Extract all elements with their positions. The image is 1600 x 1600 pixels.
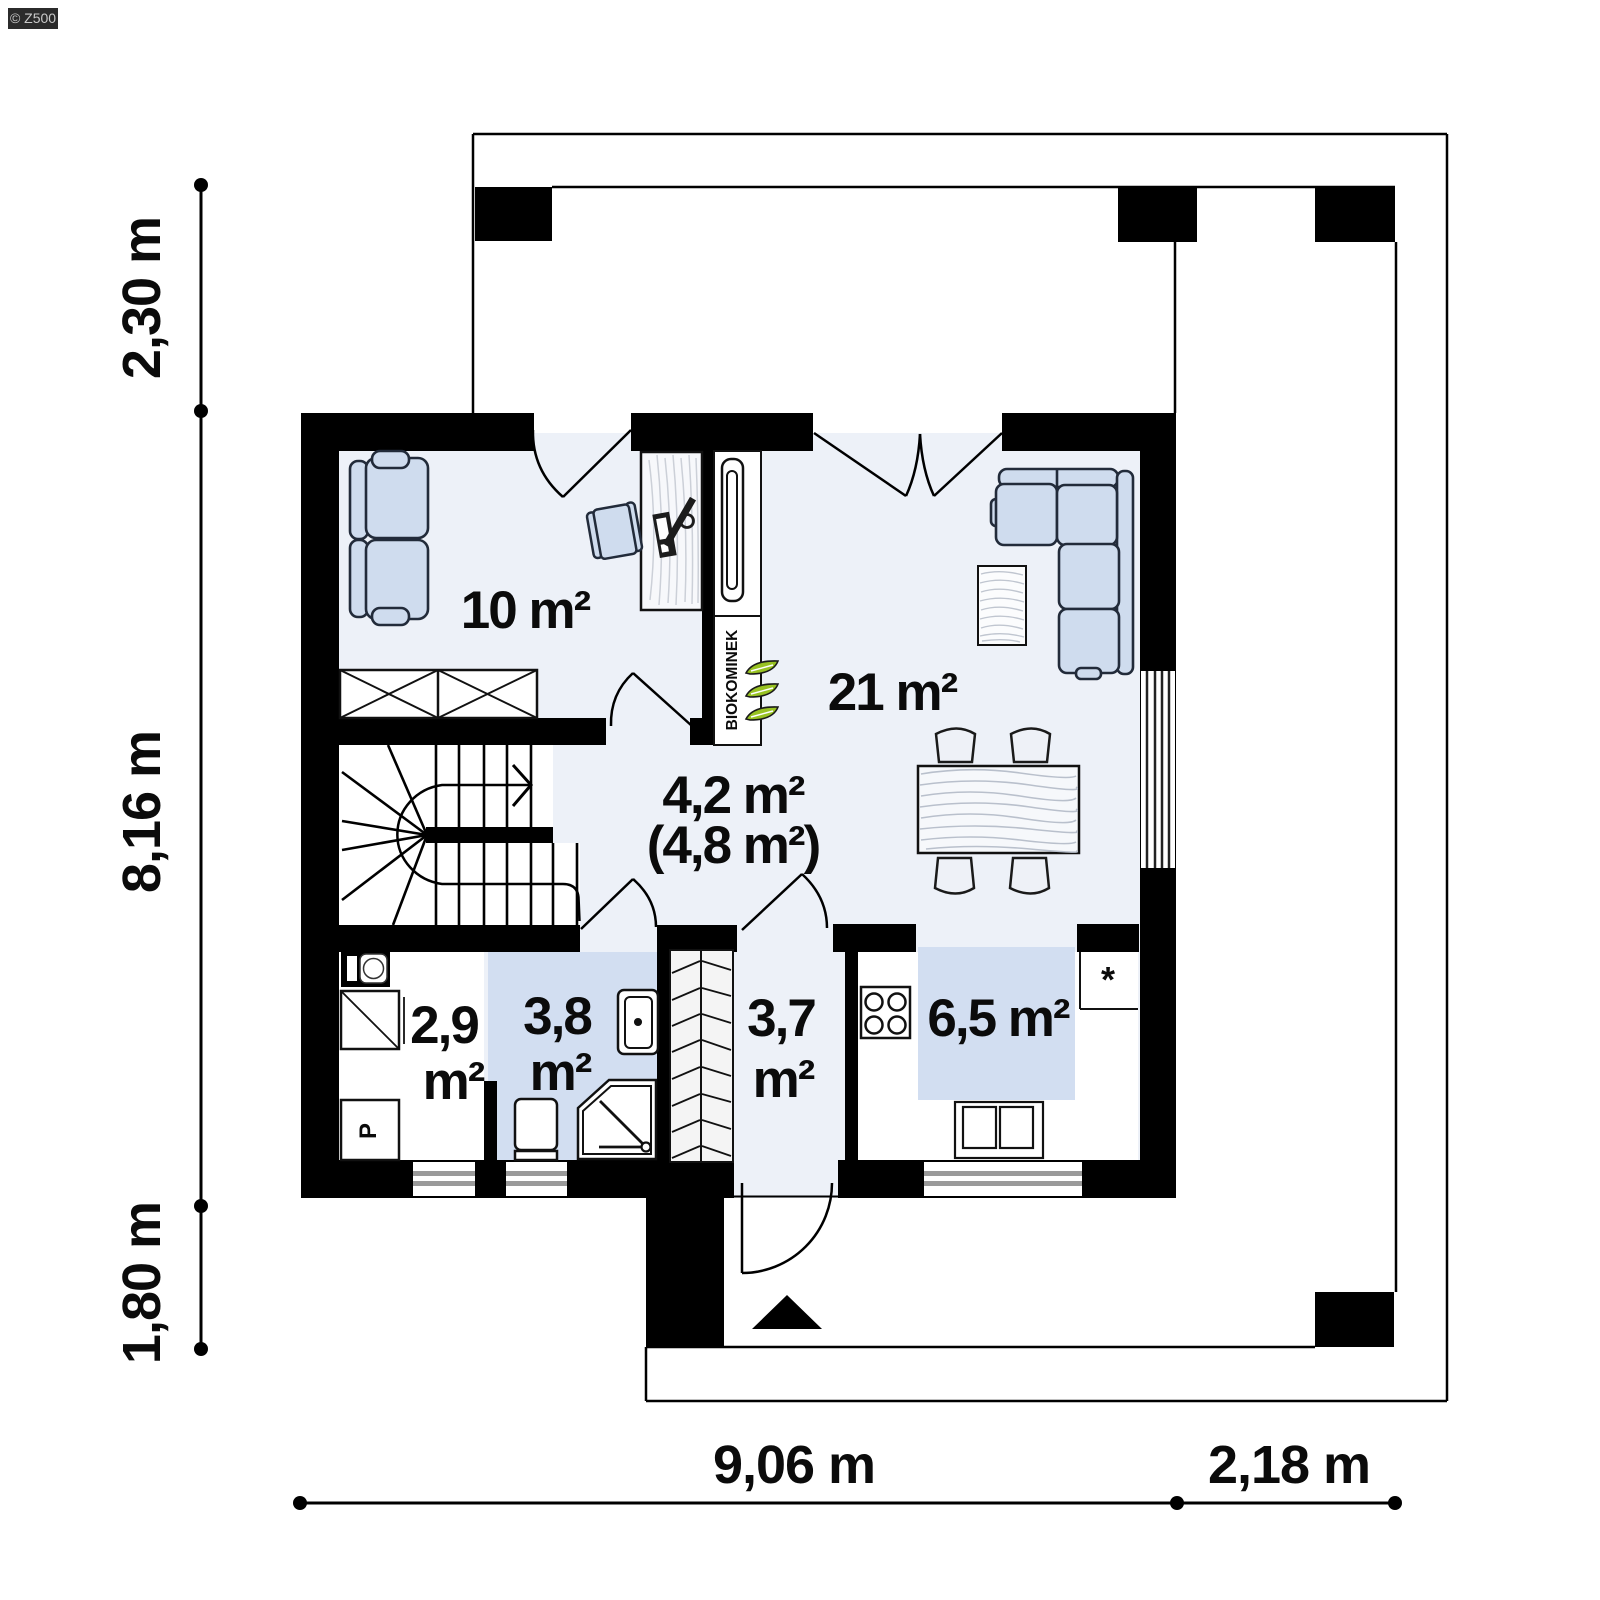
svg-text:2,18 m: 2,18 m — [1208, 1435, 1370, 1495]
svg-text:2,9: 2,9 — [410, 996, 478, 1055]
svg-text:6,5 m²: 6,5 m² — [927, 989, 1070, 1048]
svg-text:© Z500: © Z500 — [10, 10, 56, 26]
svg-text:m²: m² — [423, 1052, 485, 1111]
svg-text:8,16 m: 8,16 m — [112, 731, 172, 893]
svg-text:(4,8 m²): (4,8 m²) — [647, 816, 820, 875]
svg-text:*: * — [1101, 959, 1115, 1000]
svg-text:P: P — [355, 1123, 382, 1139]
svg-text:3,8: 3,8 — [523, 987, 591, 1046]
svg-text:m²: m² — [530, 1043, 592, 1102]
svg-text:1,80 m: 1,80 m — [112, 1202, 172, 1364]
svg-text:21 m²: 21 m² — [828, 663, 958, 722]
svg-text:10 m²: 10 m² — [461, 581, 591, 640]
svg-text:m²: m² — [753, 1050, 815, 1109]
svg-text:2,30 m: 2,30 m — [112, 217, 172, 379]
svg-text:BIOKOMINEK: BIOKOMINEK — [724, 629, 741, 731]
svg-text:3,7: 3,7 — [747, 989, 815, 1048]
svg-text:9,06 m: 9,06 m — [713, 1435, 875, 1495]
